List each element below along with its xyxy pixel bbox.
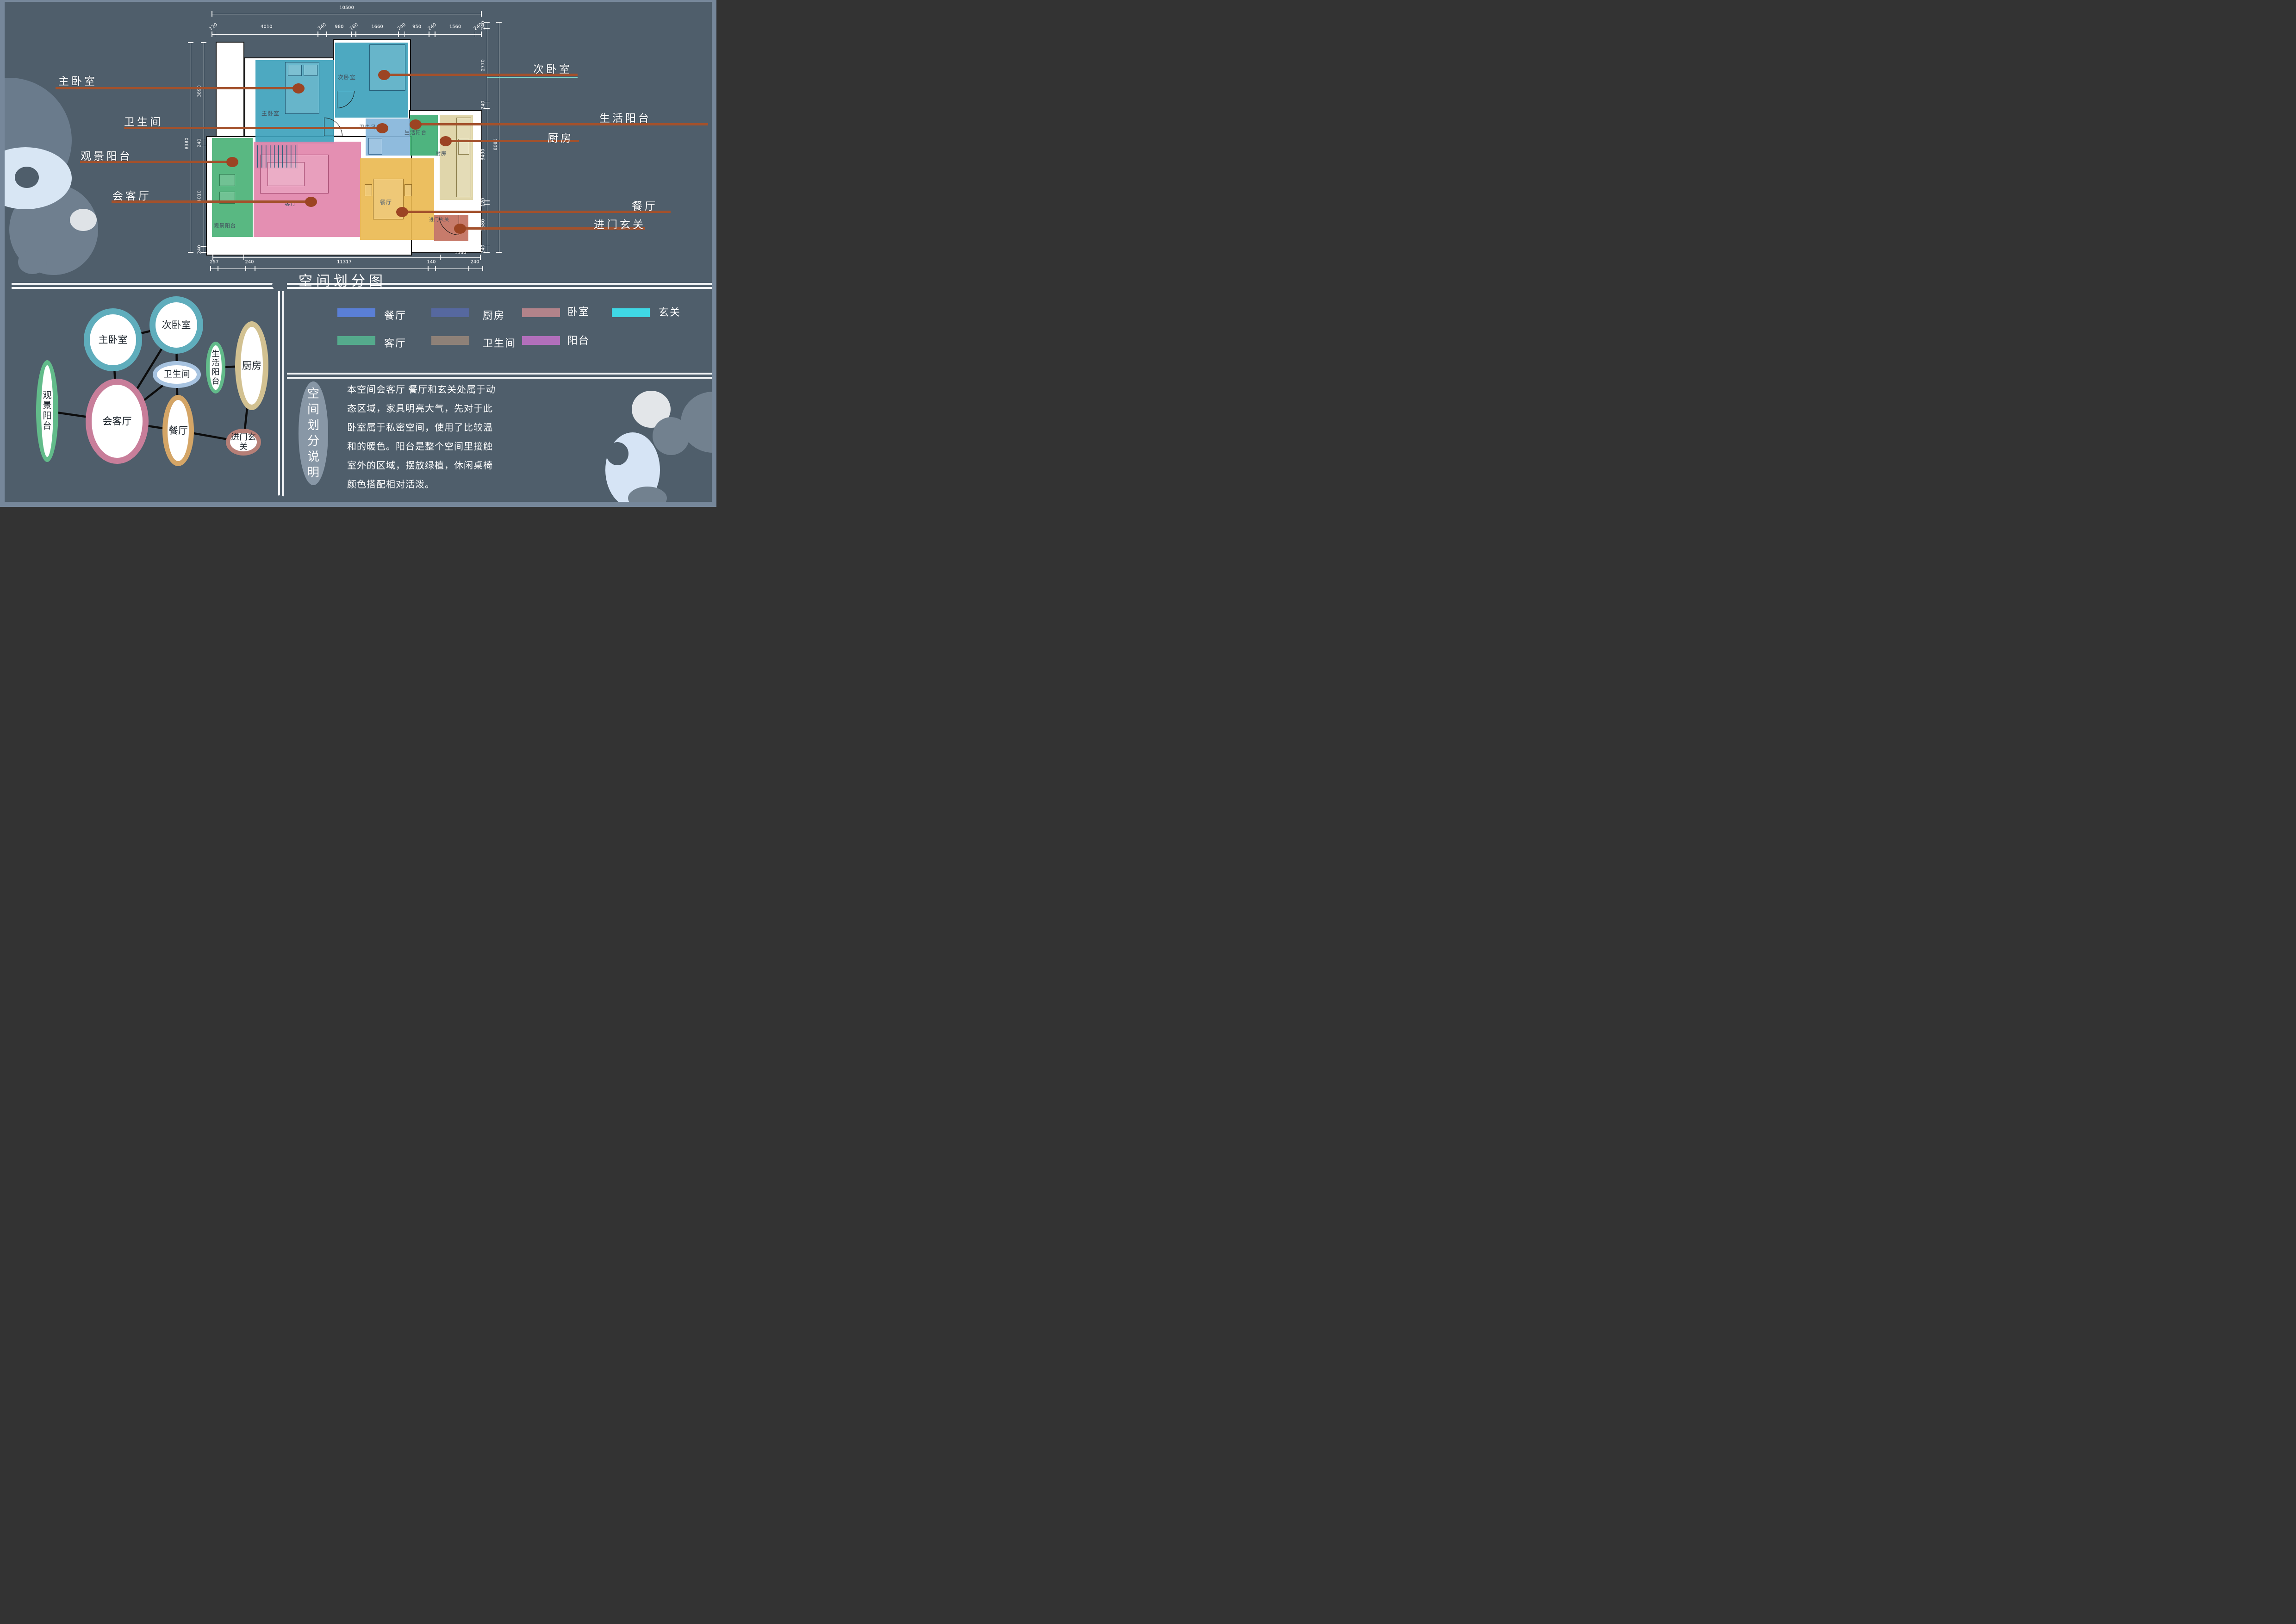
page-title: 空间划分图 — [292, 269, 393, 290]
legend-label: 卧室 — [567, 304, 590, 319]
dimension-tick — [496, 252, 502, 253]
bubble-node-label: 餐厅 — [168, 425, 188, 436]
divider-line — [12, 283, 276, 285]
dimension-value: 8380 — [185, 137, 190, 149]
explanation-line: 态区域，家具明亮大气，先对于此 — [347, 400, 541, 418]
page-frame — [712, 0, 716, 507]
dimension-tick — [212, 31, 212, 37]
dimension-tick — [188, 252, 193, 253]
dimension-value: 11317 — [337, 260, 352, 265]
dimension-value: 980 — [335, 25, 343, 30]
legend-label: 厨房 — [483, 307, 505, 322]
dimension-value: 160 — [349, 22, 359, 31]
page-frame — [0, 0, 5, 507]
furniture-sketch — [369, 44, 405, 91]
page-frame — [0, 0, 716, 2]
dimension-value: 120 — [481, 198, 486, 207]
dimension-tick — [398, 31, 399, 37]
dimension-tick — [484, 204, 490, 205]
dimension-tick — [201, 42, 206, 43]
deco-circle — [70, 209, 97, 231]
explanation-paragraph: 本空间会客厅 餐厅和玄关处属于动态区域，家具明亮大气，先对于此卧室属于私密空间，… — [347, 381, 541, 494]
dimension-tick — [215, 31, 216, 37]
dimension-line — [212, 34, 481, 35]
divider-line — [287, 377, 712, 379]
legend-swatch-客厅 — [337, 336, 375, 345]
dimension-tick — [201, 252, 206, 253]
callout-line-bathroom — [124, 127, 384, 129]
dimension-tick — [428, 266, 429, 271]
legend-label: 餐厅 — [384, 307, 406, 322]
room-label-life_balcony: 生活阳台 — [404, 129, 460, 136]
dimension-tick — [404, 31, 405, 37]
bubble-node-view_balcony: 观 景 阳 台 — [36, 360, 58, 462]
dimension-line — [212, 14, 481, 14]
legend-swatch-厨房 — [431, 308, 469, 317]
dimension-value: 950 — [412, 25, 421, 30]
dimension-tick — [245, 266, 246, 271]
dimension-value: 340 — [317, 22, 327, 31]
dimension-line — [211, 269, 483, 269]
bubble-node-kitchen: 厨房 — [235, 321, 268, 410]
dimension-tick — [480, 255, 481, 260]
bubble-node-label: 观 景 阳 台 — [43, 391, 51, 431]
callout-dot-living_room — [305, 197, 317, 207]
callout-line-life_balcony — [416, 123, 708, 125]
bubble-node-label: 会客厅 — [103, 416, 132, 427]
divider-line — [278, 291, 280, 500]
legend-label: 阳台 — [567, 332, 590, 347]
dimension-tick — [255, 266, 255, 271]
callout-label-life_balcony: 生活阳台 — [599, 109, 651, 125]
callout-label-second_bedroom: 次卧室 — [533, 60, 572, 76]
callout-label-master_bedroom: 主卧室 — [58, 72, 97, 88]
bubble-node-dining_room: 餐厅 — [162, 395, 194, 466]
dimension-tick — [440, 255, 441, 260]
callout-label-living_room: 会客厅 — [112, 187, 151, 203]
dimension-tick — [482, 266, 483, 271]
furniture-sketch — [365, 184, 372, 196]
dimension-line — [499, 22, 499, 252]
dimension-value: 4010 — [261, 25, 272, 30]
bubble-node-label: 卫生间 — [163, 369, 190, 380]
bubble-node-master_bedroom: 主卧室 — [84, 308, 142, 371]
legend-swatch-餐厅 — [337, 308, 375, 317]
dimension-value: 140 — [427, 260, 436, 265]
dimension-tick — [484, 28, 490, 29]
dimension-value: 1660 — [371, 25, 383, 30]
bubble-node-label: 次卧室 — [162, 319, 191, 331]
furniture-sketch — [219, 174, 235, 186]
dimension-tick — [468, 266, 469, 271]
deco-circle — [18, 250, 47, 274]
dimension-value: 1560 — [449, 25, 461, 30]
divider-line — [282, 291, 284, 500]
bubble-node-entry: 进门玄关 — [226, 429, 261, 456]
dimension-tick — [475, 31, 476, 37]
explanation-heading: 空 间 划 分 说 明 — [307, 386, 319, 481]
dimension-tick — [355, 31, 356, 37]
page-frame — [0, 502, 716, 507]
dimension-tick — [201, 146, 206, 147]
wardrobe-hatch — [257, 145, 297, 168]
dimension-value: 7680 — [336, 250, 348, 256]
bubble-node-life_balcony: 生 活 阳 台 — [206, 342, 225, 394]
callout-label-bathroom: 卫生间 — [124, 113, 163, 129]
dimension-tick — [496, 22, 502, 23]
divider-line — [287, 373, 712, 375]
furniture-sketch — [288, 65, 302, 76]
explanation-line: 卧室属于私密空间，使用了比较温 — [347, 418, 541, 437]
room-label-view_balcony: 观景阳台 — [214, 222, 269, 229]
dimension-tick — [484, 252, 490, 253]
dimension-value: 10500 — [339, 6, 354, 11]
explanation-line: 和的暖色。阳台是整个空间里接触 — [347, 437, 541, 456]
callout-dot-kitchen — [440, 136, 452, 146]
callout-line-dining_room — [402, 211, 671, 213]
dimension-tick — [481, 11, 482, 17]
explanation-line: 室外的区域，摆放绿植，休闲桌椅 — [347, 456, 541, 475]
callout-dot-entry — [454, 224, 466, 234]
dimension-tick — [484, 108, 490, 109]
legend-label: 卫生间 — [483, 335, 516, 350]
bubble-node-second_bedroom: 次卧室 — [149, 296, 203, 354]
deco-circle — [15, 167, 39, 188]
legend-swatch-阳台 — [522, 336, 560, 345]
furniture-sketch — [368, 138, 382, 155]
legend-label: 客厅 — [384, 335, 406, 350]
bubble-node-label: 主卧室 — [99, 334, 128, 345]
dimension-line — [487, 22, 487, 252]
legend-swatch-卧室 — [522, 308, 560, 317]
bubble-node-bathroom: 卫生间 — [153, 361, 201, 388]
callout-dot-life_balcony — [410, 119, 422, 130]
callout-label-view_balcony: 观景阳台 — [81, 147, 132, 163]
dimension-tick — [351, 31, 352, 37]
callout-dot-bathroom — [376, 123, 388, 133]
dimension-value: 240 — [470, 260, 479, 265]
dimension-line — [204, 43, 204, 252]
divider-junction-cap — [272, 280, 285, 291]
dimension-tick — [212, 11, 212, 17]
explanation-line: 颜色搭配相对活泼。 — [347, 475, 541, 494]
dimension-tick — [218, 266, 218, 271]
bubble-node-label: 生 活 阳 台 — [212, 350, 220, 386]
furniture-sketch — [304, 65, 317, 76]
dimension-value: 240 — [245, 260, 254, 265]
furniture-sketch — [456, 118, 471, 197]
bubble-node-label: 厨房 — [242, 360, 261, 371]
dimension-value: 2770 — [481, 59, 486, 71]
deco-circle — [606, 442, 628, 465]
dimension-value: 1560 — [454, 250, 466, 256]
dimension-tick — [317, 31, 318, 37]
legend-label: 玄关 — [659, 304, 681, 319]
dimension-value: 1200 — [222, 250, 234, 256]
dimension-line — [191, 43, 191, 252]
dimension-tick — [481, 31, 482, 37]
dimension-tick — [188, 42, 193, 43]
callout-dot-view_balcony — [226, 157, 238, 167]
legend-swatch-玄关 — [612, 308, 650, 317]
dimension-value: 120 — [208, 22, 218, 31]
dimension-tick — [326, 31, 327, 37]
dimension-tick — [429, 31, 429, 37]
explanation-heading-pill: 空 间 划 分 说 明 — [299, 381, 328, 485]
callout-label-kitchen: 厨房 — [548, 129, 573, 145]
dimension-tick — [210, 266, 211, 271]
callout-dot-second_bedroom — [378, 70, 390, 80]
dimension-value: 257 — [210, 260, 218, 265]
callout-dot-master_bedroom — [292, 83, 305, 94]
poster-page: 空间划分图 空 间 划 分 说 明 本空间会客厅 餐厅和玄关处属于动态区域，家具… — [0, 0, 716, 507]
divider-line — [12, 287, 276, 289]
legend-swatch-卫生间 — [431, 336, 469, 345]
dimension-tick — [435, 266, 436, 271]
furniture-sketch — [404, 184, 412, 196]
bubble-node-living_room: 会客厅 — [86, 379, 149, 464]
dimension-tick — [435, 31, 436, 37]
explanation-line: 本空间会客厅 餐厅和玄关处属于动 — [347, 381, 541, 400]
callout-label-dining_room: 餐厅 — [632, 197, 658, 213]
callout-dot-dining_room — [396, 207, 408, 217]
callout-label-entry: 进门玄关 — [594, 216, 646, 231]
dimension-tick — [243, 255, 244, 260]
bubble-node-label: 进门玄关 — [230, 432, 257, 451]
dimension-value: 240 — [427, 22, 437, 31]
callout-underline-second_bedroom — [487, 77, 578, 78]
dimension-value: 240 — [397, 22, 407, 31]
